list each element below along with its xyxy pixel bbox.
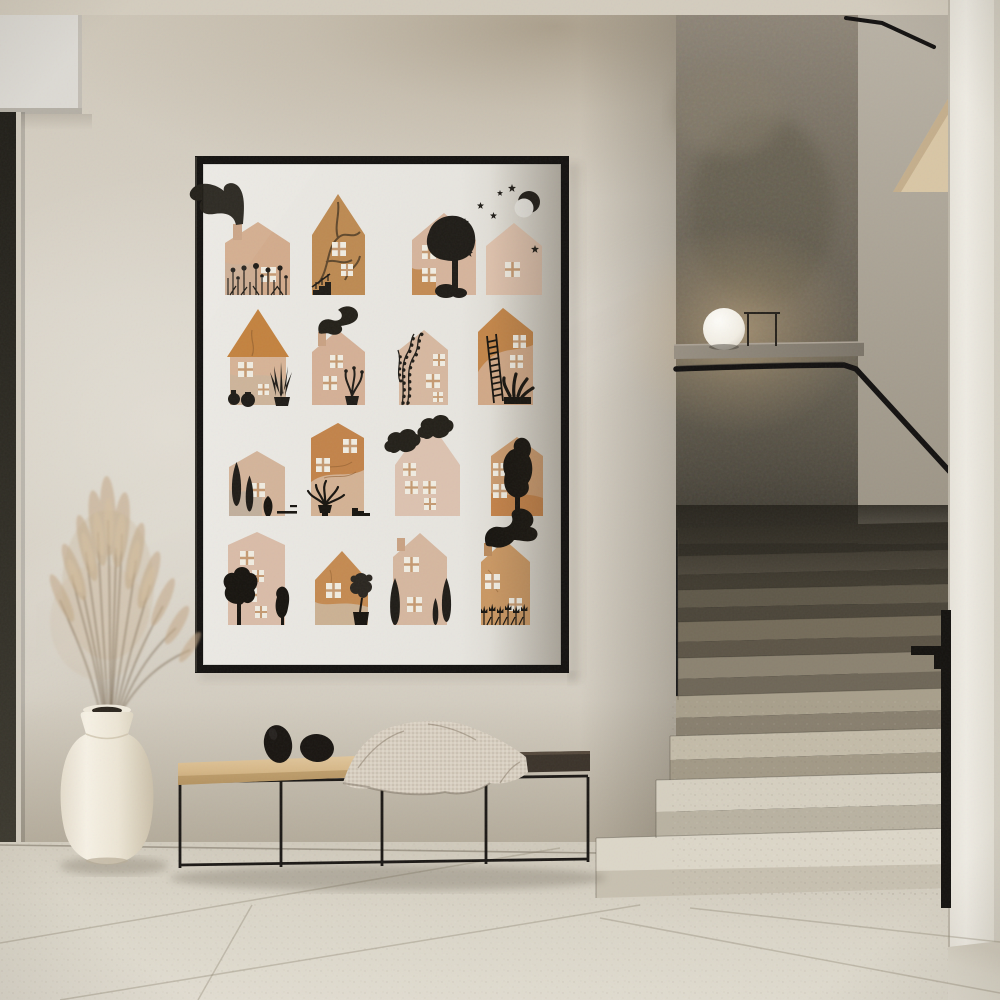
interior-photo [0,0,1000,1000]
scene-canvas [0,0,1000,1000]
vignette [0,0,1000,1000]
